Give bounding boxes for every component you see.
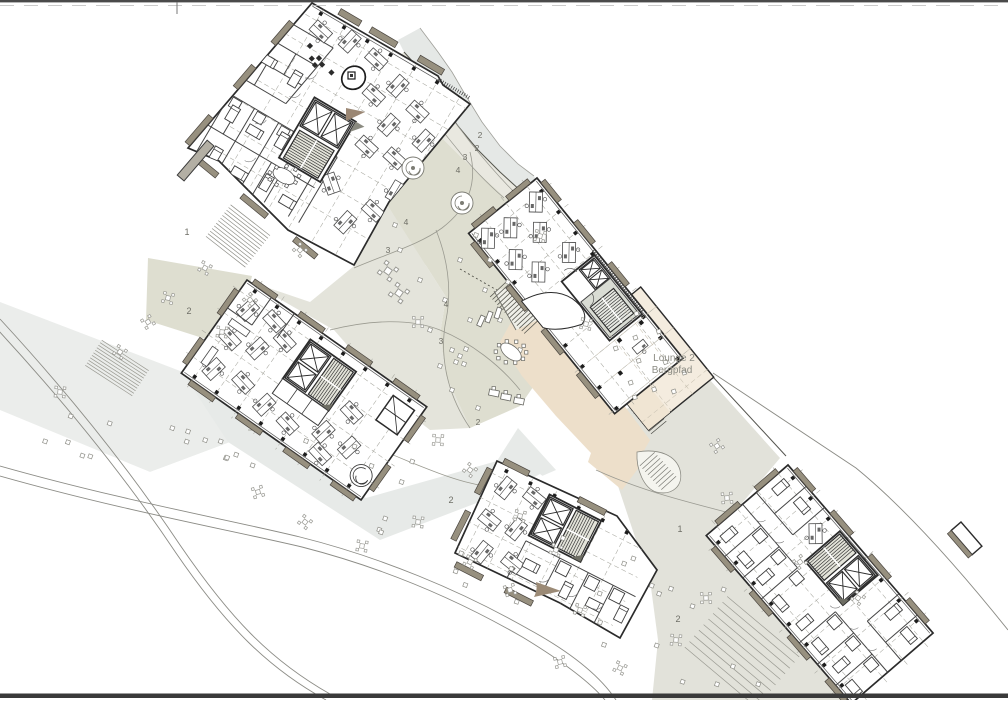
svg-text:3: 3 (439, 336, 444, 346)
svg-text:Lounge 2: Lounge 2 (653, 353, 695, 364)
svg-text:1: 1 (677, 524, 682, 534)
svg-text:4: 4 (456, 165, 461, 175)
svg-text:4: 4 (404, 217, 409, 227)
svg-text:2: 2 (186, 306, 191, 316)
svg-text:3: 3 (463, 152, 468, 162)
svg-text:2: 2 (448, 495, 453, 505)
svg-text:4: 4 (444, 299, 449, 309)
svg-text:2: 2 (476, 417, 481, 427)
svg-text:2: 2 (475, 143, 480, 153)
svg-text:Bergpfad: Bergpfad (652, 365, 693, 376)
svg-text:3: 3 (386, 245, 391, 255)
svg-text:2: 2 (675, 614, 680, 624)
svg-text:1: 1 (184, 227, 189, 237)
svg-text:2: 2 (478, 130, 483, 140)
